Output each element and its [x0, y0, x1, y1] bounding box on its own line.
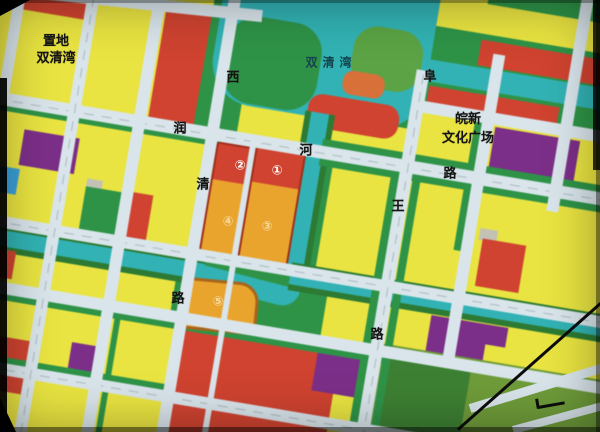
parcel-red-small-east: [475, 238, 526, 293]
planning-map-photo: 置地 双清湾 双清湾 皖新 文化广场 润 河 路 西 清 路 阜 王 路 ① ②…: [0, 0, 600, 432]
map-canvas: [0, 0, 600, 432]
parcel-3-orange: [239, 182, 298, 265]
